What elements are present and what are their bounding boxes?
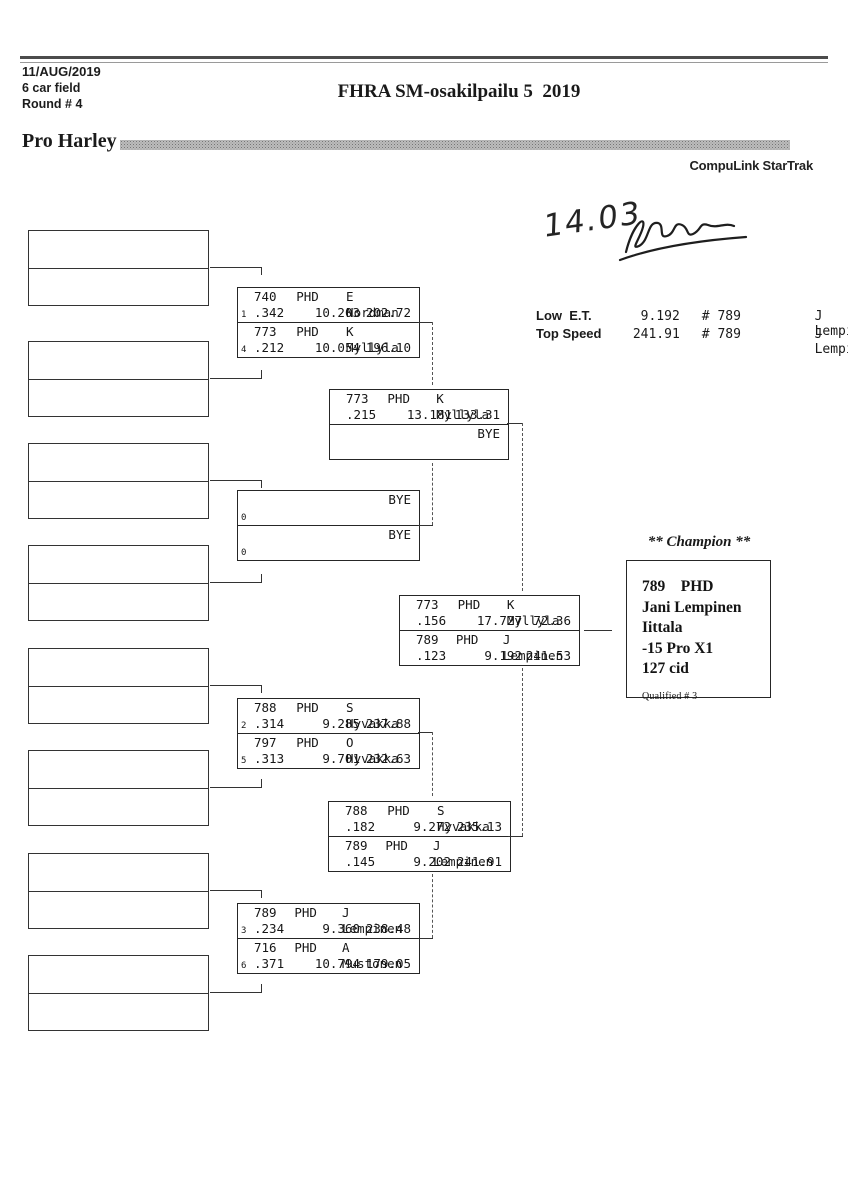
entry-773-sf: 773PHDK Myllyla .21513.181133.31 <box>330 390 508 424</box>
top-rule-thin <box>20 62 828 63</box>
match1-to-semi1-elbow <box>418 322 433 323</box>
class-code: PHD <box>456 632 503 648</box>
entry-789-final: 789PHDJ Lempinen .1239.192241.53 <box>400 630 579 665</box>
slot4-connector <box>210 582 262 583</box>
elapsed-time: 9.360 <box>298 921 360 937</box>
match4-to-semi2-dash <box>432 874 433 938</box>
semi1-to-final-elbow <box>507 423 523 424</box>
bye-label: BYE <box>388 527 411 543</box>
speed: 72.36 <box>533 613 571 629</box>
driver-name: E Nordman <box>346 289 411 305</box>
elapsed-time: 10.054 <box>298 340 360 356</box>
speed: 202.72 <box>366 305 411 321</box>
reaction-time: .313 <box>254 751 298 767</box>
seed-number: 5 <box>241 757 246 766</box>
seed-number: 4 <box>241 346 246 355</box>
match3-to-semi2-elbow <box>418 732 433 733</box>
lane-slot-box-8 <box>28 955 209 1031</box>
class-code: PHD <box>385 838 433 854</box>
car-number: 788 <box>254 700 296 716</box>
entry-bye-top: BYE 0 <box>238 491 419 525</box>
speed: 237.88 <box>366 716 411 732</box>
class-code: PHD <box>296 700 346 716</box>
entry-bye-sf: BYE <box>330 424 508 459</box>
entry-773-final: 773PHDK Myllyla .15617.72772.36 <box>400 596 579 630</box>
reaction-time: .342 <box>254 305 298 321</box>
entry-788: 788PHDS Hyvakka .3149.285237.88 2 <box>238 699 419 733</box>
seed-number: 6 <box>241 962 246 971</box>
driver-name: K Myllyla <box>346 324 411 340</box>
seed-number: 2 <box>241 722 246 731</box>
elapsed-time: 10.794 <box>298 956 360 972</box>
low-et-row: Low E.T. 9.192 # 789 J Lempinen <box>536 308 848 326</box>
car-number: 789 <box>416 632 456 648</box>
slot3-connector-tick <box>261 480 262 488</box>
slot2-connector <box>210 378 262 379</box>
lane-slot-box-3 <box>28 443 209 519</box>
semifinal2-box: 788PHDS Hyvakka .1829.272235.13 789PHDJ … <box>328 801 511 872</box>
seed-number: 1 <box>241 311 246 320</box>
driver-name: K Myllyla <box>436 391 500 407</box>
match1-to-semi1-dash <box>432 322 433 385</box>
champion-heading: ** Champion ** <box>620 534 778 551</box>
top-speed-value: 241.91 <box>614 327 680 342</box>
car-number: 789 <box>254 905 294 921</box>
slot2-connector-tick <box>261 370 262 378</box>
semi2-to-final-dash <box>522 668 523 836</box>
round1-match3-box: 788PHDS Hyvakka .3149.285237.88 2 797PHD… <box>237 698 420 769</box>
semi1-to-final-dash <box>522 423 523 591</box>
round1-bye-box: BYE 0 BYE 0 <box>237 490 420 561</box>
car-number: 716 <box>254 940 294 956</box>
driver-name: S Hyvakka <box>437 803 502 819</box>
class-code: PHD <box>387 391 436 407</box>
bye-label: BYE <box>477 426 500 442</box>
bye-to-semi1-dash <box>432 463 433 525</box>
slot8-connector <box>210 992 262 993</box>
seed-number: 3 <box>241 927 246 936</box>
slot8-connector-tick <box>261 984 262 992</box>
scanned-race-ladder-page: 11/AUG/2019 6 car field Round # 4 FHRA S… <box>0 0 848 1200</box>
category-heading: Pro Harley <box>22 130 117 153</box>
class-code: PHD <box>294 940 342 956</box>
class-code: PHD <box>458 597 507 613</box>
class-code: PHD <box>387 803 437 819</box>
slot7-connector-tick <box>261 890 262 898</box>
reaction-time: .314 <box>254 716 298 732</box>
handwritten-signature-scribble <box>616 208 752 266</box>
driver-name: J Lempinen <box>503 632 571 648</box>
class-code: PHD <box>296 324 346 340</box>
speed: 133.31 <box>455 407 500 423</box>
low-et-label: Low E.T. <box>536 308 614 323</box>
entry-789: 789PHDJ Lempinen .2349.360238.48 3 <box>238 904 419 938</box>
elapsed-time: 10.203 <box>298 305 360 321</box>
champion-entry: -15 Pro X1 <box>642 639 764 660</box>
car-number: 773 <box>346 391 387 407</box>
driver-name: A Mustonen <box>342 940 411 956</box>
entry-789-sf: 789PHDJ Lempinen .1459.202241.91 <box>329 836 510 871</box>
reaction-time: .212 <box>254 340 298 356</box>
driver-name: S Hyvakka <box>346 700 411 716</box>
champion-box: 789 PHD Jani Lempinen Iittala -15 Pro X1… <box>626 560 771 698</box>
final-to-champion-line <box>584 630 612 631</box>
class-code: PHD <box>294 905 342 921</box>
seed-number: 0 <box>241 549 246 558</box>
champion-qualified: Qualified # 3 <box>642 687 764 708</box>
elapsed-time: 9.202 <box>389 854 451 870</box>
slot1-connector <box>210 267 262 268</box>
elapsed-time: 13.181 <box>390 407 452 423</box>
car-number: 740 <box>254 289 296 305</box>
page-title: FHRA SM-osakilpailu 5 2019 <box>70 81 848 103</box>
halftone-band <box>120 140 790 150</box>
semi2-to-final-elbow <box>508 836 523 837</box>
bye-label: BYE <box>388 492 411 508</box>
event-records: Low E.T. 9.192 # 789 J Lempinen Top Spee… <box>536 308 848 344</box>
slot5-connector <box>210 685 262 686</box>
class-code: PHD <box>296 735 346 751</box>
entry-773: 773PHDK Myllyla .21210.054196.10 4 <box>238 322 419 357</box>
champion-engine: 127 cid <box>642 659 764 680</box>
lane-slot-box-1 <box>28 230 209 306</box>
reaction-time: .182 <box>345 819 389 835</box>
elapsed-time: 9.272 <box>389 819 451 835</box>
top-rule-thick <box>20 56 828 59</box>
champion-town: Iittala <box>642 618 764 639</box>
car-number: 773 <box>254 324 296 340</box>
round1-match4-box: 789PHDJ Lempinen .2349.360238.48 3 716PH… <box>237 903 420 974</box>
speed: 235.13 <box>457 819 502 835</box>
bye-to-semi1-elbow <box>418 525 433 526</box>
car-number: 788 <box>345 803 387 819</box>
event-date: 11/AUG/2019 <box>22 64 101 79</box>
reaction-time: .215 <box>346 407 390 423</box>
slot6-connector <box>210 787 262 788</box>
lane-slot-box-4 <box>28 545 209 621</box>
speed: 241.91 <box>457 854 502 870</box>
slot1-connector-tick <box>261 267 262 275</box>
driver-name: J Lempinen <box>342 905 411 921</box>
semifinal1-box: 773PHDK Myllyla .21513.181133.31 BYE <box>329 389 509 460</box>
low-et-car: # 789 <box>702 309 759 324</box>
final-box: 773PHDK Myllyla .15617.72772.36 789PHDJ … <box>399 595 580 666</box>
class-code: PHD <box>296 289 346 305</box>
seed-number: 0 <box>241 514 246 523</box>
timing-brand: CompuLink StarTrak <box>560 158 813 173</box>
lane-slot-box-2 <box>28 341 209 417</box>
slot5-connector-tick <box>261 685 262 693</box>
speed: 232.63 <box>366 751 411 767</box>
driver-name: K Myllyla <box>507 597 571 613</box>
elapsed-time: 9.192 <box>460 648 522 664</box>
speed: 196.10 <box>366 340 411 356</box>
top-speed-row: Top Speed 241.91 # 789 J Lempinen <box>536 326 848 344</box>
slot4-connector-tick <box>261 574 262 582</box>
match3-to-semi2-dash <box>432 732 433 796</box>
elapsed-time: 9.701 <box>298 751 360 767</box>
lane-slot-box-6 <box>28 750 209 826</box>
lane-slot-box-7 <box>28 853 209 929</box>
match4-to-semi2-elbow <box>418 938 433 939</box>
driver-name: O Hyvakka <box>346 735 411 751</box>
reaction-time: .145 <box>345 854 389 870</box>
top-speed-car: # 789 <box>702 327 759 342</box>
car-number: 789 <box>345 838 385 854</box>
slot3-connector <box>210 480 262 481</box>
entry-788-sf: 788PHDS Hyvakka .1829.272235.13 <box>329 802 510 836</box>
slot7-connector <box>210 890 262 891</box>
speed: 241.53 <box>526 648 571 664</box>
slot6-connector-tick <box>261 779 262 787</box>
reaction-time: .234 <box>254 921 298 937</box>
low-et-value: 9.192 <box>614 309 680 324</box>
reaction-time: .371 <box>254 956 298 972</box>
elapsed-time: 9.285 <box>298 716 360 732</box>
top-speed-driver: J Lempinen <box>815 327 848 357</box>
lane-slot-box-5 <box>28 648 209 724</box>
entry-797: 797PHDO Hyvakka .3139.701232.63 5 <box>238 733 419 768</box>
champion-name: Jani Lempinen <box>642 598 764 619</box>
entry-716: 716PHDA Mustonen .37110.794179.05 6 <box>238 938 419 973</box>
entry-bye-bottom: BYE 0 <box>238 525 419 560</box>
car-number: 773 <box>416 597 458 613</box>
speed: 238.48 <box>366 921 411 937</box>
reaction-time: .123 <box>416 648 460 664</box>
round1-match1-box: 740PHDE Nordman .34210.203202.72 1 773PH… <box>237 287 420 358</box>
champion-car-class: 789 PHD <box>642 577 764 598</box>
speed: 179.05 <box>366 956 411 972</box>
top-speed-label: Top Speed <box>536 326 614 341</box>
car-number: 797 <box>254 735 296 751</box>
reaction-time: .156 <box>416 613 460 629</box>
driver-name: J Lempinen <box>433 838 502 854</box>
elapsed-time: 17.727 <box>460 613 522 629</box>
entry-740: 740PHDE Nordman .34210.203202.72 1 <box>238 288 419 322</box>
